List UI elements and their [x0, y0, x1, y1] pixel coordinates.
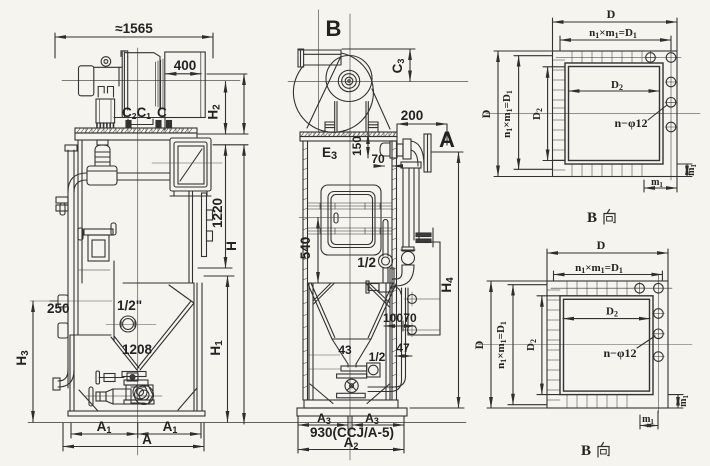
svg-text:D: D	[479, 109, 493, 118]
svg-text:43: 43	[338, 343, 352, 357]
svg-text:250: 250	[47, 301, 70, 316]
svg-text:D: D	[597, 238, 606, 252]
svg-text:70: 70	[403, 311, 417, 325]
svg-text:B: B	[587, 210, 597, 226]
svg-text:H: H	[224, 241, 239, 251]
svg-text:47: 47	[396, 341, 410, 355]
svg-text:C: C	[157, 105, 167, 120]
svg-text:D: D	[472, 340, 486, 349]
svg-text:B: B	[326, 16, 342, 41]
svg-text:A: A	[142, 432, 152, 447]
svg-text:1/2: 1/2	[369, 350, 386, 364]
svg-text:n−φ12: n−φ12	[615, 116, 648, 130]
svg-text:540: 540	[298, 237, 313, 260]
svg-text:B: B	[581, 443, 591, 459]
svg-text:D: D	[607, 7, 616, 21]
svg-text:70: 70	[371, 152, 385, 166]
svg-text:1/2": 1/2"	[117, 298, 142, 313]
svg-text:≈1565: ≈1565	[115, 21, 153, 36]
svg-text:A: A	[439, 127, 455, 152]
svg-text:100: 100	[383, 311, 403, 325]
svg-text:1/2: 1/2	[357, 255, 376, 270]
svg-text:150: 150	[350, 136, 364, 156]
svg-text:400: 400	[174, 58, 197, 73]
svg-text:1208: 1208	[122, 342, 153, 357]
svg-text:200: 200	[401, 108, 424, 123]
svg-text:n−φ12: n−φ12	[604, 346, 637, 360]
